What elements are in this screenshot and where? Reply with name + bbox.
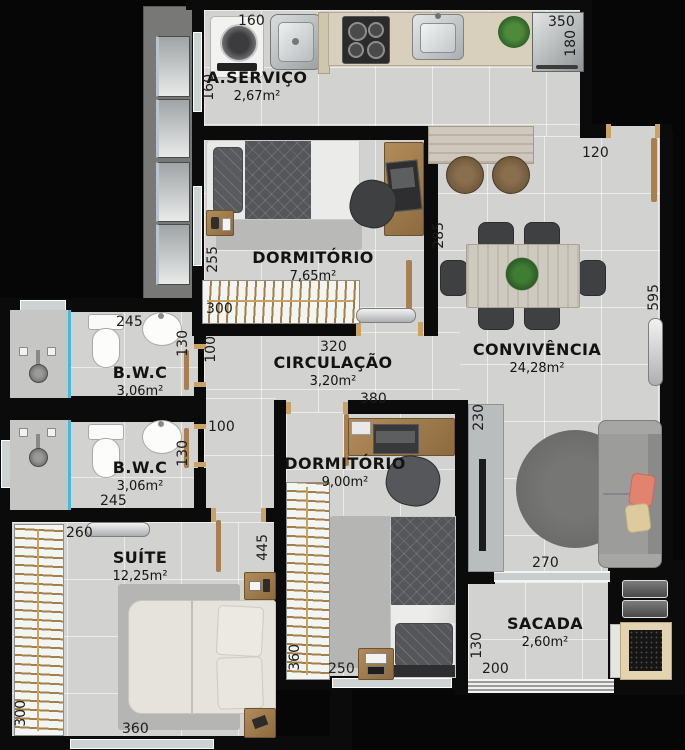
sofa-pillow-beige [624,503,651,534]
wall-suite-top-stub [266,508,274,522]
bbq-coals [629,630,662,671]
facade-window-2 [156,99,190,158]
cooktop [342,16,390,64]
suite-ns2-item [252,715,269,729]
dim-dorm1-height: 255 [206,246,220,273]
dorm1-duvet [245,141,311,219]
dim-laundry-width: 160 [238,14,265,28]
suite-ns1-item [263,579,270,592]
room-area: 3,06m² [80,479,200,494]
suite-pillow-2 [216,656,264,710]
room-name: B.W.C [80,363,200,382]
dim-circ-width: 320 [320,340,347,354]
dorm2-rug [330,516,394,668]
entry-threshold [610,126,656,138]
dim-sacada-width: 200 [482,662,509,676]
dorm2-duvet [391,517,455,605]
room-name: SUÍTE [60,548,220,567]
dorm1-lamp [211,217,219,229]
bwc1-control-1 [19,347,28,356]
wall-bbq-right [670,560,685,695]
dorm2-bed [390,516,456,678]
washer-drum [220,24,258,62]
dim-sacada-depth: 130 [470,632,484,659]
label-convivencia: CONVIVÊNCIA 24,28m² [457,340,617,376]
room-area: 3,06m² [80,384,200,399]
dim-tv-wall: 230 [472,404,486,431]
burner-1 [348,22,367,41]
dining-chair-5 [440,260,468,296]
entry-door-frame-l [606,124,611,138]
shaft-band [0,396,206,422]
table-plant [504,256,540,292]
bwc2-faucet [158,421,164,427]
suite-window [70,739,214,749]
dorm1-window [193,186,202,266]
bar-stool-1 [446,156,484,194]
dim-suite-left: 300 [14,700,28,727]
room-area: 3,20m² [253,374,413,389]
sofa-arm-bottom [599,554,661,567]
dorm1-laptop-keys [390,167,415,189]
wall-suite-top [0,508,216,522]
bwc1-glass [68,310,71,398]
sacada-railing [468,679,614,693]
dorm2-laptop-keys [376,431,415,443]
dim-conviv-height: 595 [647,284,661,311]
dorm2-blanket-fold [391,605,455,623]
bwc1-control-2 [47,347,56,356]
bwc1-faucet [158,313,164,319]
bwc1-toilet-bowl [92,328,120,368]
dim-dorm2-width: 380 [360,392,387,406]
dim-dorm2-closet: 360 [288,644,302,671]
sofa-pillow-salmon [628,472,656,507]
wall-dorm1-bottom-stub [424,322,438,336]
suite-ns1-phone [249,581,261,591]
bar-stool-2 [492,156,530,194]
label-sacada: SACADA 2,60m² [465,614,625,650]
dim-fridge-width: 350 [548,15,575,29]
facade-window-4 [156,224,190,285]
counter-plant [498,16,530,48]
dorm2-printer [351,421,371,435]
suite-door-frame-l [211,508,216,522]
dorm2-door-frame-r [343,402,348,414]
dorm2-door-frame-l [286,402,291,414]
bwc2-door-frame-t [194,424,206,429]
room-area: 2,60m² [465,635,625,650]
tv [479,459,486,551]
laundry-sink [270,14,322,70]
dorm1-pillow [213,147,243,213]
dim-suite-top: 260 [66,526,93,540]
dim-bwc1-width: 245 [116,315,143,329]
dim-suite-width: 360 [122,722,149,736]
dim-bwc2-width: 245 [100,494,127,508]
kitchen-faucet [435,13,441,19]
label-bwc1: B.W.C 3,06m² [80,363,200,399]
convivencia-ac [648,318,663,386]
dim-suite-height: 445 [256,534,270,561]
dorm2-ns-slot [367,666,385,675]
bbq-shelf-1 [622,580,668,598]
dorm2-desk [348,418,455,456]
bwc2-control-2 [47,428,56,437]
dorm1-phone [222,218,231,231]
dim-circ-door: 100 [204,336,218,363]
suite-nightstand-2 [244,708,276,738]
room-name: SACADA [465,614,625,633]
suite-pillow-1 [216,605,265,657]
room-name: CONVIVÊNCIA [457,340,617,359]
floor-plan: A.SERVIÇO 2,67m² DORMITÓRIO 7,65m² CONVI… [0,0,685,750]
room-name: CIRCULAÇÃO [253,353,413,372]
room-area: 24,28m² [457,361,617,376]
kitchen-sink [412,14,464,60]
entry-door-frame-r [655,124,660,138]
dorm2-bed-frame [391,665,455,677]
room-area: 9,00m² [265,475,425,490]
facade-window-3 [156,162,190,222]
dim-sofa-wall: 270 [532,556,559,570]
bwc2-glass [68,420,71,510]
dorm1-bed [206,140,360,220]
room-area: 7,65m² [233,269,393,284]
bwc2-shower-head [29,448,48,467]
dim-bwc2-depth: 130 [176,440,190,467]
dorm2-nightstand [358,648,394,680]
room-name: DORMITÓRIO [233,248,393,267]
wall-dorm2-conviv [455,400,468,695]
label-dorm2: DORMITÓRIO 9,00m² [265,454,425,490]
bbq-shelf-2 [622,600,668,618]
laundry-sink-drain [292,38,299,45]
dim-dorm1-closet: 300 [206,302,233,316]
sacada-sliding-door [494,571,610,582]
dim-laundry-height: 160 [202,74,216,101]
suite-bed-crease [191,601,193,713]
burner-4 [367,41,385,59]
dim-bwc1-depth: 130 [176,330,190,357]
kitchen-sink-basin [420,23,456,53]
dim-entry-width: 120 [582,146,609,160]
room-area: 12,25m² [60,569,220,584]
entry-door-leaf [651,138,657,202]
dorm2-ns-lamp [365,653,387,664]
suite-bed [128,600,276,714]
suite-nightstand-1 [244,572,276,600]
dim-hall-door: 100 [208,420,235,434]
wall-top [186,0,592,10]
fridge-handle [536,65,578,69]
dorm1-ac [356,308,416,323]
dining-chair-6 [578,260,606,296]
suite-wardrobe-rod [37,529,39,731]
burner-3 [348,42,364,58]
label-suite: SUÍTE 12,25m² [60,548,220,584]
sofa-arm-top [599,421,661,434]
barbecue-grill [620,622,672,680]
dorm1-nightstand [206,210,234,236]
wall-dorm1-bottom [192,322,360,336]
dorm2-laptop [373,424,419,454]
bwc1-shower-head [29,364,48,383]
wall-kitchen-divider [192,126,438,140]
label-dorm1: DORMITÓRIO 7,65m² [233,248,393,284]
dim-conviv-width: 285 [432,222,446,249]
bwc2-control-1 [19,428,28,437]
burner-2 [368,22,384,38]
dim-fridge-depth: 180 [564,30,578,57]
room-name: DORMITÓRIO [265,454,425,473]
suite-door-frame-r [261,508,266,522]
dorm2-pillow [395,623,453,667]
label-circulacao: CIRCULAÇÃO 3,20m² [253,353,413,389]
dim-dorm2-bottom: 250 [328,662,355,676]
suite-ac [86,522,150,537]
dorm1-door-frame-r [418,322,423,336]
dorm1-door-frame-l [356,322,361,336]
dorm2-wardrobe-rod [306,487,308,675]
